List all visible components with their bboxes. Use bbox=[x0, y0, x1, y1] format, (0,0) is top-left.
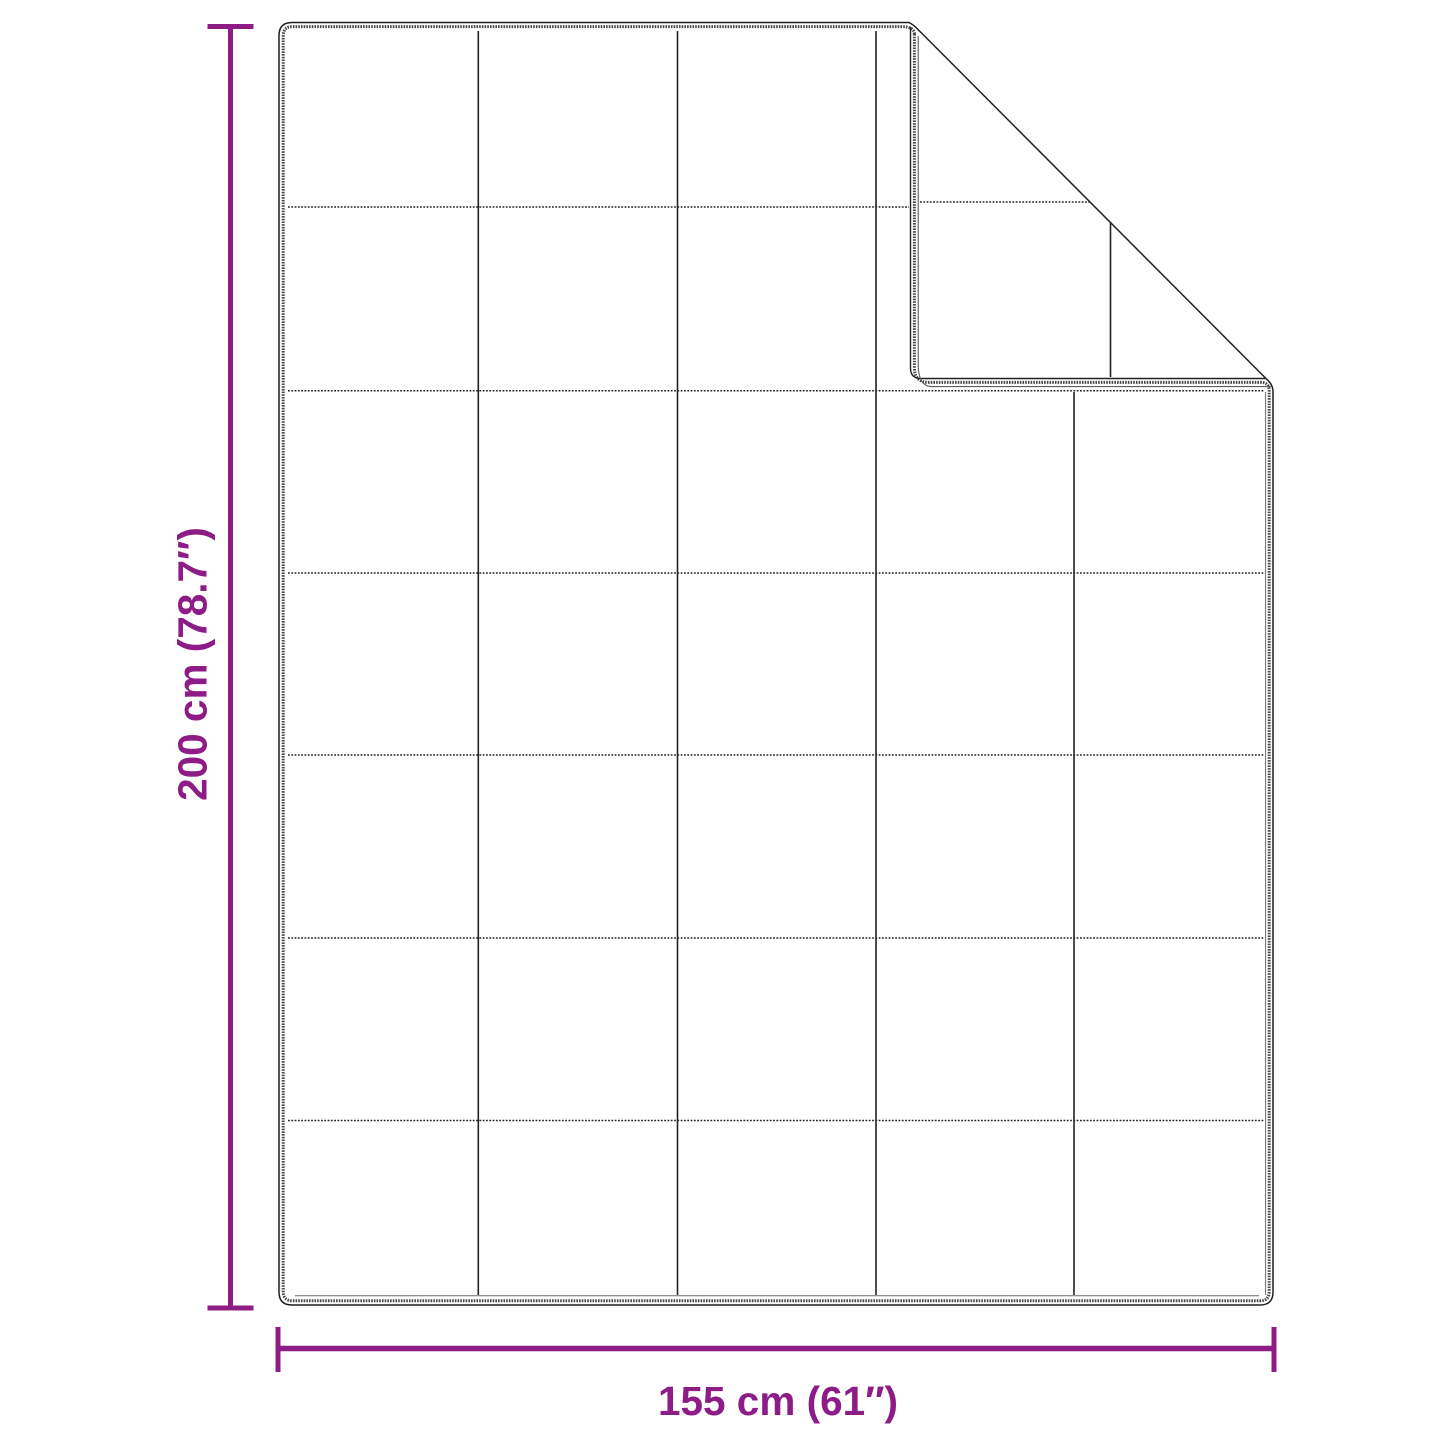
svg-text:200 cm (78.7″): 200 cm (78.7″) bbox=[170, 527, 216, 801]
svg-text:155 cm (61″): 155 cm (61″) bbox=[658, 1378, 898, 1424]
